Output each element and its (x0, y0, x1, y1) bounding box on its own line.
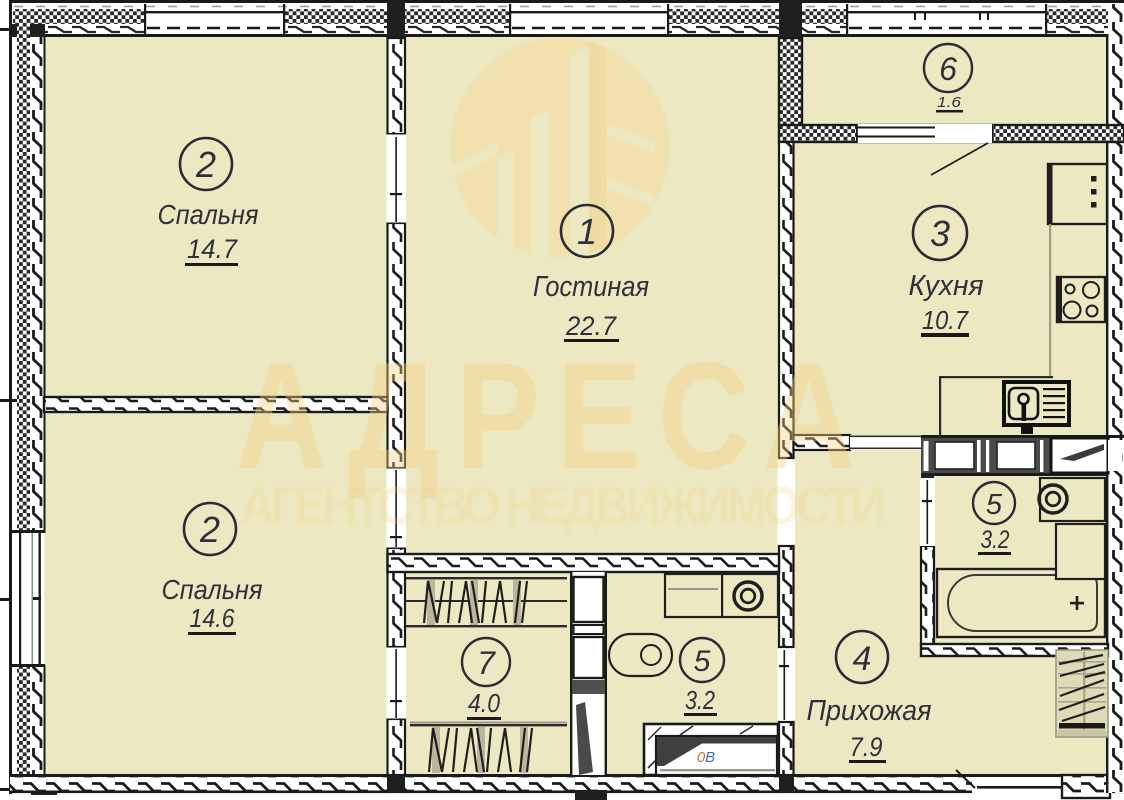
svg-text:4.0: 4.0 (468, 688, 500, 718)
svg-text:7.9: 7.9 (850, 732, 883, 762)
svg-text:1.6: 1.6 (937, 94, 962, 111)
svg-text:0В: 0В (697, 749, 715, 766)
svg-text:2: 2 (199, 509, 220, 550)
svg-text:3.2: 3.2 (981, 526, 1010, 554)
svg-text:Спальня: Спальня (158, 199, 259, 230)
svg-text:5: 5 (986, 489, 1003, 521)
svg-text:4: 4 (853, 640, 872, 678)
svg-text:Спальня: Спальня (162, 574, 263, 605)
svg-text:1: 1 (577, 211, 597, 252)
svg-text:Гостиная: Гостиная (533, 271, 649, 303)
svg-text:14.6: 14.6 (190, 603, 235, 633)
svg-text:10.7: 10.7 (922, 305, 969, 335)
svg-text:Кухня: Кухня (909, 270, 984, 302)
svg-text:3: 3 (930, 213, 950, 254)
svg-text:5: 5 (694, 645, 711, 678)
svg-text:3.2: 3.2 (685, 685, 715, 715)
svg-text:2: 2 (195, 144, 216, 185)
svg-text:7: 7 (477, 645, 496, 681)
svg-text:Прихожая: Прихожая (807, 695, 932, 727)
svg-text:14.7: 14.7 (187, 234, 238, 264)
svg-text:6: 6 (939, 51, 957, 87)
svg-text:АГЕНТСТВО НЕДВИЖИМОСТИ: АГЕНТСТВО НЕДВИЖИМОСТИ (240, 475, 886, 536)
